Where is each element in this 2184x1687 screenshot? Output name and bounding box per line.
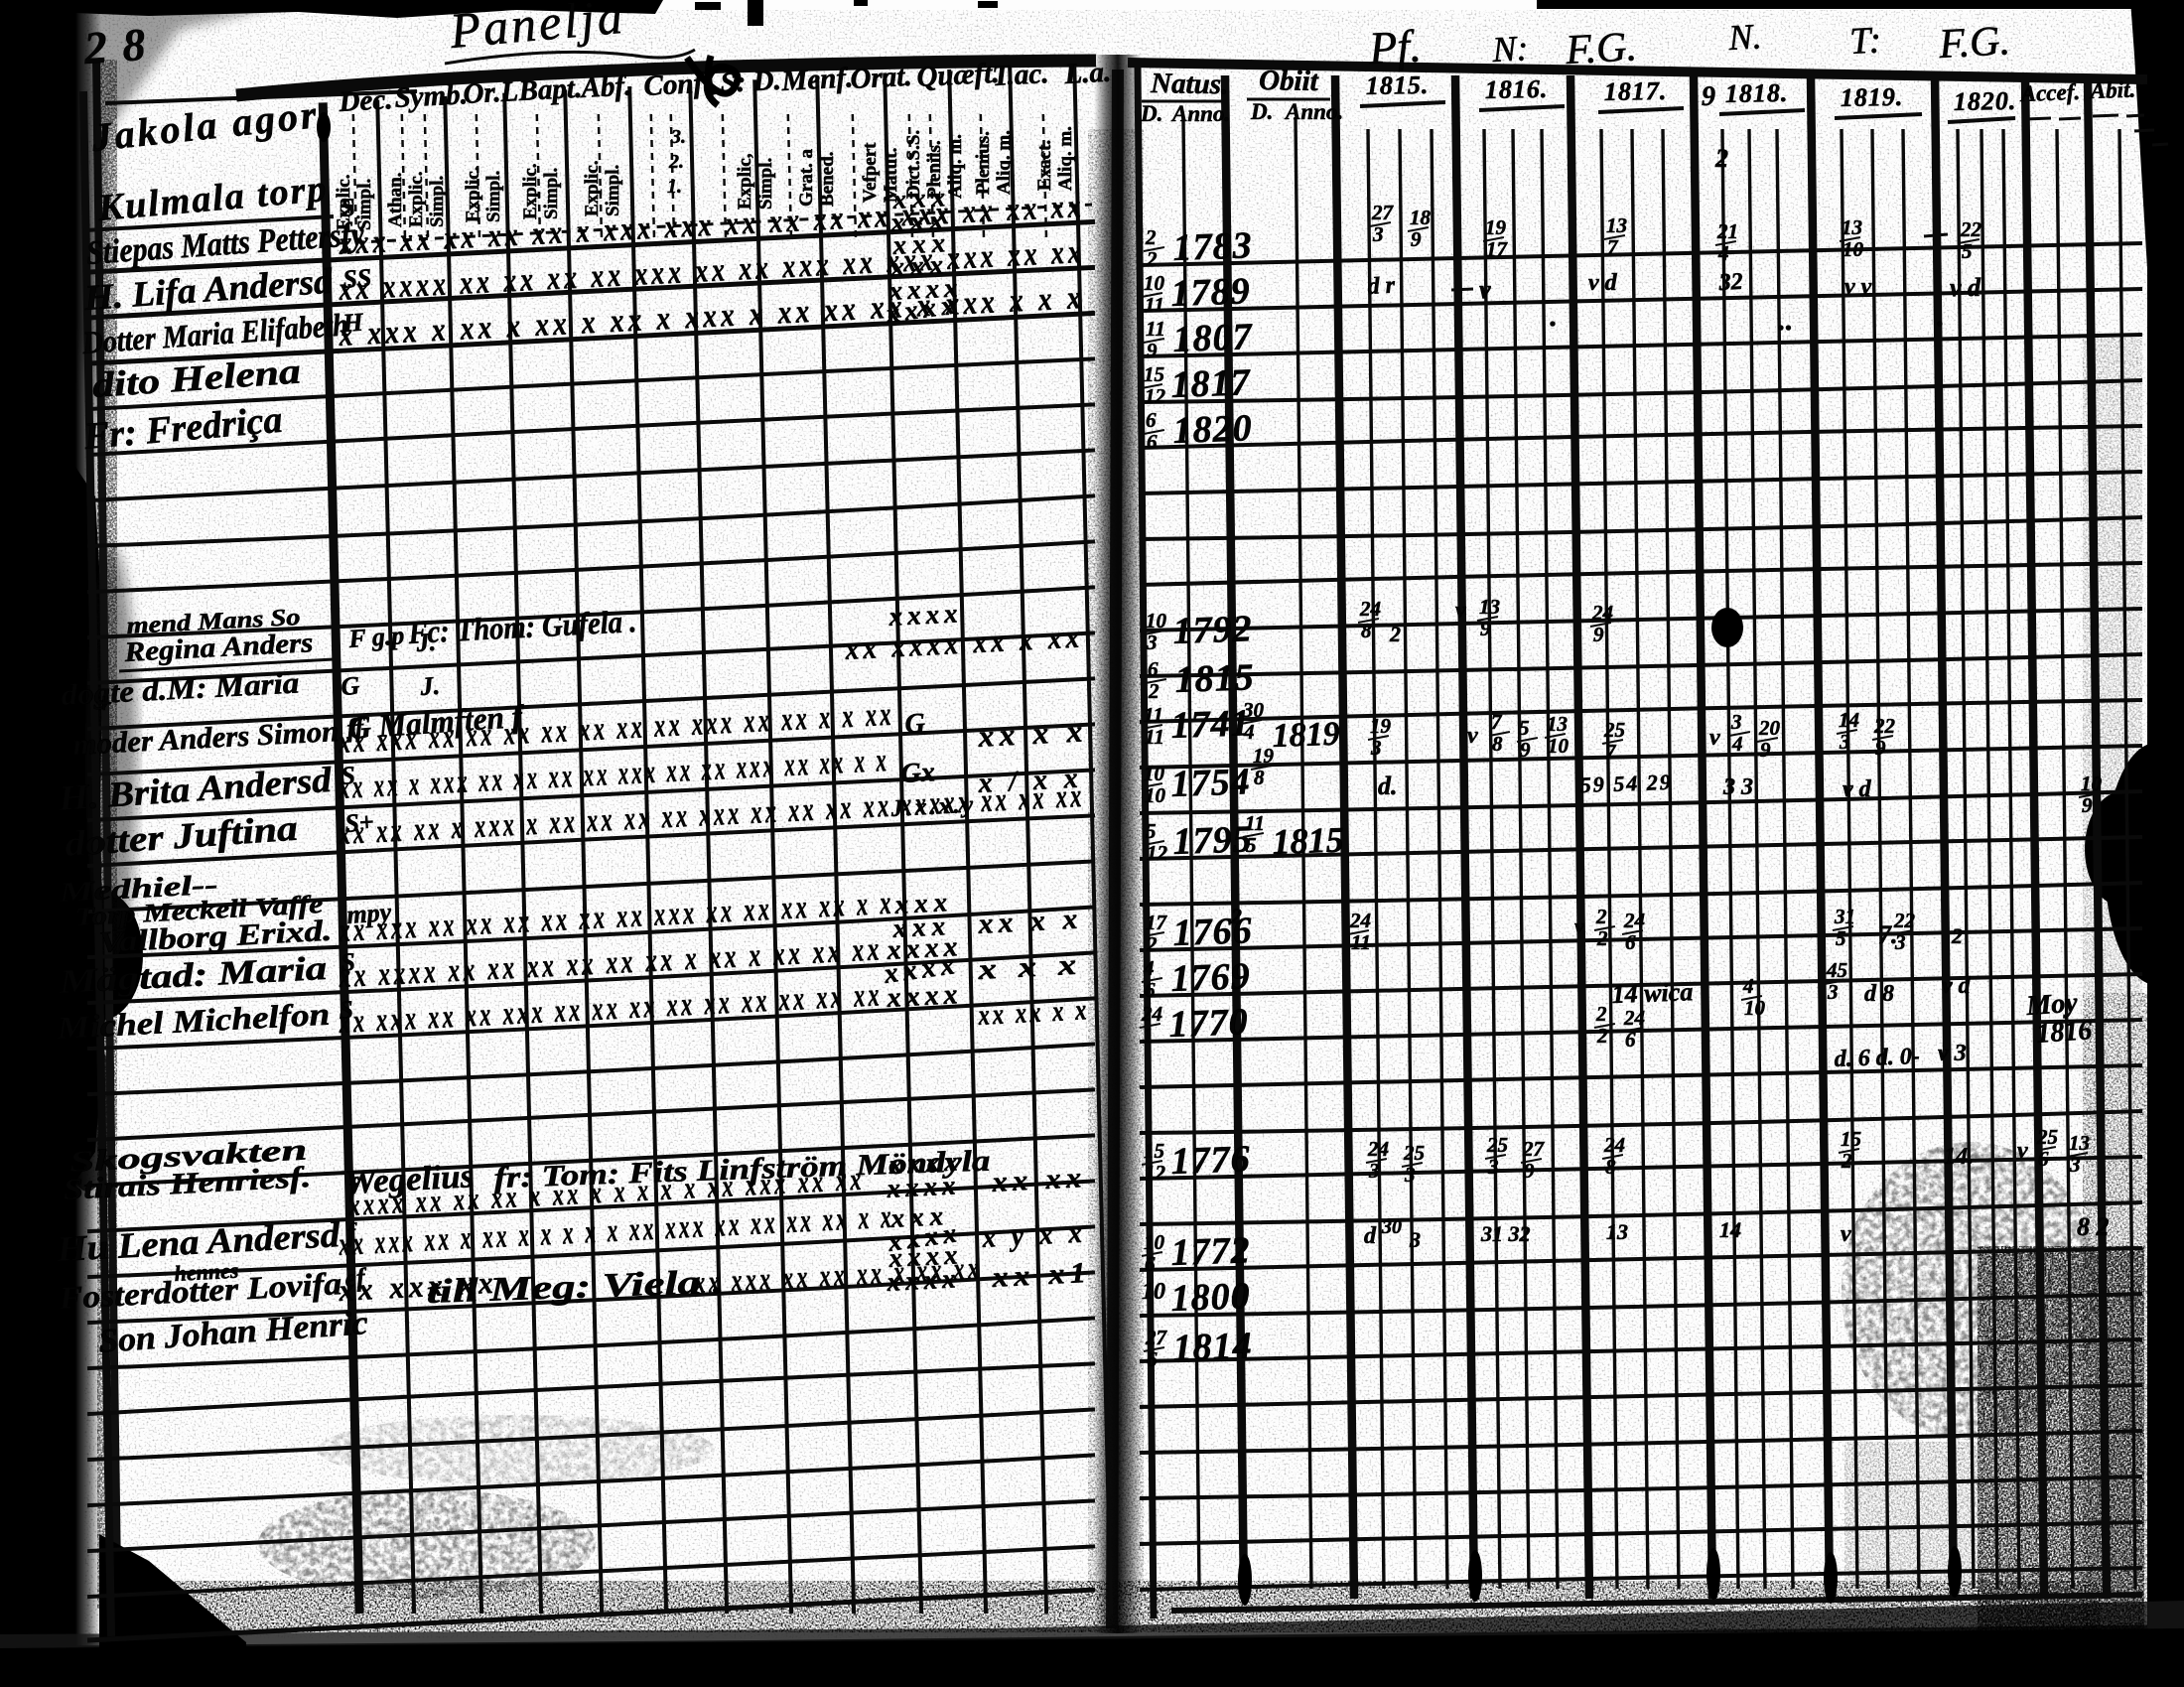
svg-text:3: 3 [1730,710,1742,734]
svg-text:22: 22 [1960,217,1982,241]
svg-text:xx x1: xx x1 [991,1257,1093,1294]
svg-text:·: · [1936,308,1944,341]
svg-text:1820.: 1820. [1954,86,2017,116]
svg-text:2: 2 [1148,679,1160,703]
svg-text:Simpl.: Simpl. [427,176,448,227]
svg-text:3: 3 [1370,736,1382,760]
svg-text:2: 2 [1596,926,1608,950]
svg-text:3: 3 [1827,980,1839,1004]
svg-text:Bapt.: Bapt. [517,72,583,107]
svg-text:xxxx: xxxx [886,1170,961,1203]
svg-text:v d: v d [1950,273,1981,302]
svg-text:xxxx: xxxx [886,979,964,1014]
svg-text:v 3: v 3 [1938,1041,1967,1066]
svg-text:D.: D. [1250,99,1273,124]
svg-text:G: G [904,708,926,740]
svg-text:12: 12 [1145,1161,1166,1185]
svg-text:Exact.: Exact. [1034,140,1055,191]
svg-text:24: 24 [1623,1006,1645,1030]
svg-text:Anno.: Anno. [1284,99,1343,124]
svg-text:+: + [95,687,112,720]
svg-text:5: 5 [1519,716,1530,740]
svg-text:Simpl.: Simpl. [755,158,776,210]
svg-text:25: 25 [1403,1141,1425,1165]
svg-text:6: 6 [2038,1147,2049,1171]
svg-text:1815: 1815 [1174,656,1255,701]
svg-text:5: 5 [1836,926,1846,950]
svg-text:Gx: Gx [900,757,936,789]
svg-text:Natus.: Natus. [1150,68,1229,100]
svg-text:Anno.: Anno. [1170,101,1230,126]
svg-text:6: 6 [1146,408,1157,432]
svg-text:2: 2 [1596,1024,1608,1048]
svg-text:3.: 3. [670,126,686,148]
svg-text:3: 3 [1839,730,1850,754]
svg-text:1: 1 [1143,1024,1154,1048]
svg-text:v d: v d [1942,973,1972,999]
svg-text:Athan.: Athan. [385,173,406,227]
svg-text:3: 3 [1368,1159,1380,1183]
svg-text:4: 4 [1742,974,1754,998]
svg-text:1741: 1741 [1170,702,1251,747]
svg-text:d: d [1364,1223,1377,1249]
svg-text:11: 11 [1145,293,1164,317]
svg-text:6: 6 [1145,978,1156,1002]
svg-text:27: 27 [1371,201,1395,224]
svg-text:2: 2 [1230,904,1242,928]
svg-text:N.: N. [1726,16,1762,58]
svg-text:Explic,: Explic, [735,153,755,210]
svg-text:24: 24 [1359,597,1381,621]
svg-text:v: v [1455,598,1466,624]
svg-text:24: 24 [1141,1002,1162,1026]
svg-text:14 wica: 14 wica [1611,977,1694,1009]
svg-text:Explic.: Explic. [406,172,427,227]
svg-text:13: 13 [1606,213,1627,237]
svg-text:3: 3 [1146,631,1158,654]
svg-text:2 8: 2 8 [81,19,149,73]
svg-text:v: v [1709,725,1720,751]
svg-text:24: 24 [1603,1133,1625,1157]
svg-text:2: 2 [1951,923,1963,948]
svg-text:31 32: 31 32 [1480,1221,1531,1246]
svg-text:2: 2 [1389,622,1401,646]
svg-text:25: 25 [1603,718,1625,742]
svg-text:22: 22 [1873,714,1896,738]
svg-text:11: 11 [1144,703,1163,727]
svg-text:45: 45 [1826,958,1847,982]
svg-text:xx xx: xx xx [991,1162,1088,1198]
svg-text:10: 10 [1144,762,1165,785]
svg-text:1816: 1816 [2035,1015,2093,1050]
svg-text:13: 13 [1606,1219,1628,1244]
svg-text:7: 7 [1491,710,1503,734]
svg-text:2: 2 [1714,144,1728,173]
svg-text:8: 8 [1492,732,1503,756]
svg-text:v: v [1479,275,1491,304]
svg-text:10: 10 [1142,1279,1165,1305]
svg-text:15: 15 [1144,1139,1164,1163]
svg-text:2: 2 [1841,1149,1852,1173]
svg-text:T.ac.: T.ac. [992,58,1050,92]
svg-text:1820: 1820 [1172,407,1253,452]
svg-text:1807: 1807 [1172,316,1254,360]
svg-text:1772: 1772 [1170,1229,1251,1274]
svg-text:10: 10 [1744,996,1766,1020]
svg-text:Symb.: Symb. [394,78,469,114]
svg-text:8: 8 [1361,619,1372,642]
svg-text:v: v [2017,1138,2028,1164]
svg-text:F.G.: F.G. [1564,24,1638,73]
svg-text:9: 9 [1480,617,1491,640]
svg-text:12: 12 [1147,841,1168,865]
svg-text:1814: 1814 [1172,1325,1253,1369]
svg-text:Aliq. m.: Aliq. m. [1055,126,1076,191]
svg-text:v d: v d [1843,776,1872,802]
svg-text:10: 10 [1145,783,1166,807]
svg-text:6: 6 [1148,657,1159,681]
svg-text:2: 2 [1595,1002,1607,1026]
svg-text:d. 6 d. 0-: d. 6 d. 0- [1834,1044,1920,1072]
svg-text:2: 2 [1146,247,1158,271]
svg-text:Plenius.: Plenius. [973,131,994,195]
svg-text:T:: T: [1848,19,1882,63]
svg-text:10: 10 [1144,1230,1165,1254]
svg-text:Quæft.: Quæft. [916,58,1001,93]
svg-text:13: 13 [2069,1131,2090,1155]
svg-text:Abit.: Abit. [2088,76,2135,103]
svg-text:1819: 1819 [1272,716,1340,755]
svg-text:7: 7 [1605,740,1617,764]
svg-text:31: 31 [1834,905,1855,928]
svg-text:Simpl.: Simpl. [541,168,562,219]
svg-text:Orat.: Orat. [850,61,913,95]
svg-text:22: 22 [1893,909,1916,932]
svg-text:13: 13 [1842,215,1862,239]
svg-text:1818.: 1818. [1725,78,1789,108]
svg-text:Explic.: Explic. [463,167,483,222]
svg-text:59 54 29: 59 54 29 [1579,770,1673,797]
svg-text:Accef.: Accef. [2018,79,2080,106]
svg-text:25: 25 [2036,1125,2058,1149]
svg-text:18: 18 [1410,206,1432,229]
svg-text:xx xx x x: xx xx x x [977,994,1090,1032]
svg-text:L.a.: L.a. [1063,57,1112,90]
svg-text:24: 24 [1367,1137,1389,1161]
svg-text:v d: v d [1588,270,1618,296]
svg-text:32: 32 [1717,269,1743,296]
svg-text:11: 11 [1145,725,1164,749]
svg-text:2: 2 [1145,225,1157,249]
svg-text:1776: 1776 [1170,1138,1251,1183]
svg-text:14: 14 [1719,1217,1741,1242]
svg-text:25: 25 [1486,1133,1508,1157]
svg-text:15: 15 [1841,1127,1861,1151]
svg-text:9: 9 [1520,738,1531,762]
svg-text:27: 27 [1522,1137,1546,1161]
svg-text:1817.: 1817. [1604,76,1668,106]
svg-text:1817: 1817 [1170,361,1252,406]
svg-text:1800: 1800 [1170,1275,1251,1320]
svg-text:1783: 1783 [1172,224,1253,269]
svg-text:v v: v v [1844,274,1872,300]
svg-text:S: S [340,193,355,222]
svg-text:Obiit: Obiit [1259,65,1319,97]
svg-text:15: 15 [1144,362,1164,386]
svg-text:3: 3 [1894,930,1906,954]
svg-text:12: 12 [1145,384,1166,408]
svg-text:21: 21 [1716,219,1738,243]
svg-text:3: 3 [1372,222,1384,246]
svg-text:9: 9 [1147,339,1158,362]
svg-text:xx x x: xx x x [977,904,1084,941]
svg-text:3 3: 3 3 [1722,774,1753,800]
svg-text:F g.p: F g.p [346,621,405,653]
svg-text:F.G.: F.G. [1937,18,2011,68]
svg-text:·: · [1549,308,1557,341]
svg-text:Simpl.: Simpl. [483,171,504,222]
svg-text:20: 20 [1758,716,1781,740]
svg-text:1770: 1770 [1168,1001,1249,1046]
svg-text:Dec.: Dec. [338,83,394,118]
svg-text:Abf.: Abf. [579,70,632,104]
svg-text:1.: 1. [667,176,682,198]
svg-text:8: 8 [1254,766,1265,789]
svg-text:3: 3 [1404,1163,1416,1187]
svg-text:14: 14 [1839,708,1859,732]
svg-text:10: 10 [1548,734,1570,758]
svg-text:2: 2 [1146,932,1158,956]
svg-text:17: 17 [1146,911,1168,934]
svg-text:Explic.: Explic. [520,164,541,219]
svg-text:Explic.: Explic. [582,161,603,216]
svg-text:19: 19 [1253,744,1275,768]
svg-text:1769: 1769 [1170,955,1251,1000]
svg-text:24: 24 [1623,909,1645,932]
svg-text:6: 6 [1625,1028,1636,1052]
svg-text:xxxx: xxxx [887,598,963,632]
svg-text:1789: 1789 [1170,270,1251,315]
svg-text:xxxx: xxxx [886,1263,961,1297]
svg-text:1754: 1754 [1170,761,1251,805]
svg-text:x x x: x x x [976,949,1083,987]
svg-text:Grat. a: Grat. a [796,148,817,207]
svg-text:3: 3 [1487,1155,1499,1179]
svg-text:14.: 14. [1944,1144,1974,1170]
svg-text:24: 24 [1349,909,1371,932]
svg-text:J.x.x.y: J.x.x.y [889,792,977,822]
svg-text:19: 19 [1370,714,1392,738]
svg-text:8: 8 [1605,1155,1616,1179]
svg-text:30: 30 [1242,698,1265,722]
svg-text:5: 5 [1962,239,1973,263]
svg-text:d 8: d 8 [1864,981,1894,1007]
svg-text:4: 4 [1143,956,1155,980]
svg-text:10: 10 [1144,271,1165,295]
svg-text:Menf.: Menf. [780,62,854,97]
svg-text:x y x x: x y x x [981,1217,1087,1255]
svg-text:6: 6 [1147,1347,1158,1371]
svg-text:v: v [1467,723,1478,749]
svg-text:6: 6 [1147,430,1158,454]
svg-text:··: ·· [1777,312,1792,345]
svg-text:Aliq. m.: Aliq. m. [994,130,1015,195]
svg-text:1795: 1795 [1172,818,1253,863]
svg-text:10: 10 [2081,772,2103,795]
svg-text:9: 9 [1875,736,1886,760]
svg-text:4: 4 [1243,720,1255,744]
svg-text:9: 9 [1702,81,1715,112]
svg-text:10: 10 [1146,609,1167,633]
svg-text:24: 24 [1591,601,1613,625]
svg-text:11: 11 [1351,930,1371,954]
svg-text:19: 19 [1485,215,1507,239]
svg-text:27: 27 [1145,1326,1168,1349]
svg-text:N:: N: [1490,28,1529,70]
svg-text:3: 3 [2069,1153,2081,1177]
svg-text:d r: d r [1367,273,1396,300]
svg-text:xx x x: xx x x [977,713,1089,754]
svg-text:6: 6 [1145,1252,1156,1276]
svg-text:1819.: 1819. [1841,82,1904,112]
svg-text:Vefpert: Vefpert [860,142,881,203]
svg-text:6: 6 [1625,930,1636,954]
svg-text:2.: 2. [668,151,684,173]
svg-text:11: 11 [1245,811,1265,835]
svg-text:9: 9 [2082,793,2093,817]
svg-text:1816.: 1816. [1485,74,1549,104]
svg-text:5: 5 [1246,833,1257,857]
svg-text:Bened.: Bened. [817,152,838,207]
svg-text:Or.L: Or.L [463,75,519,110]
svg-text:J.: J. [418,671,440,701]
svg-text:v: v [1574,914,1584,938]
svg-text:9: 9 [1524,1159,1535,1183]
svg-text:9: 9 [1760,738,1771,762]
svg-text:G: G [340,671,360,701]
svg-text:8 2: 8 2 [2077,1212,2110,1241]
svg-text:30: 30 [1381,1216,1402,1238]
svg-text:d.: d. [1378,772,1398,800]
svg-text:13: 13 [1479,595,1500,619]
svg-text:9: 9 [1593,623,1604,646]
svg-text:4: 4 [1717,241,1729,265]
svg-text:1815: 1815 [1272,820,1344,862]
svg-text:Pf.: Pf. [1367,20,1423,73]
svg-text:9: 9 [1411,227,1422,251]
svg-text:v: v [1841,1221,1851,1247]
svg-text:17: 17 [1486,237,1509,261]
svg-text:4: 4 [1731,732,1743,756]
svg-text:Simpl.: Simpl. [603,165,623,216]
svg-text:2: 2 [1595,905,1607,928]
svg-text:10: 10 [1843,237,1864,261]
svg-text:13: 13 [1547,712,1568,736]
svg-text:11: 11 [1146,317,1165,341]
svg-text:1815.: 1815. [1366,70,1430,100]
svg-text:7: 7 [1607,235,1619,259]
svg-text:5: 5 [1146,819,1157,843]
svg-text:3: 3 [1409,1227,1421,1252]
svg-text:1792: 1792 [1172,608,1253,652]
svg-text:D.: D. [1140,101,1162,126]
